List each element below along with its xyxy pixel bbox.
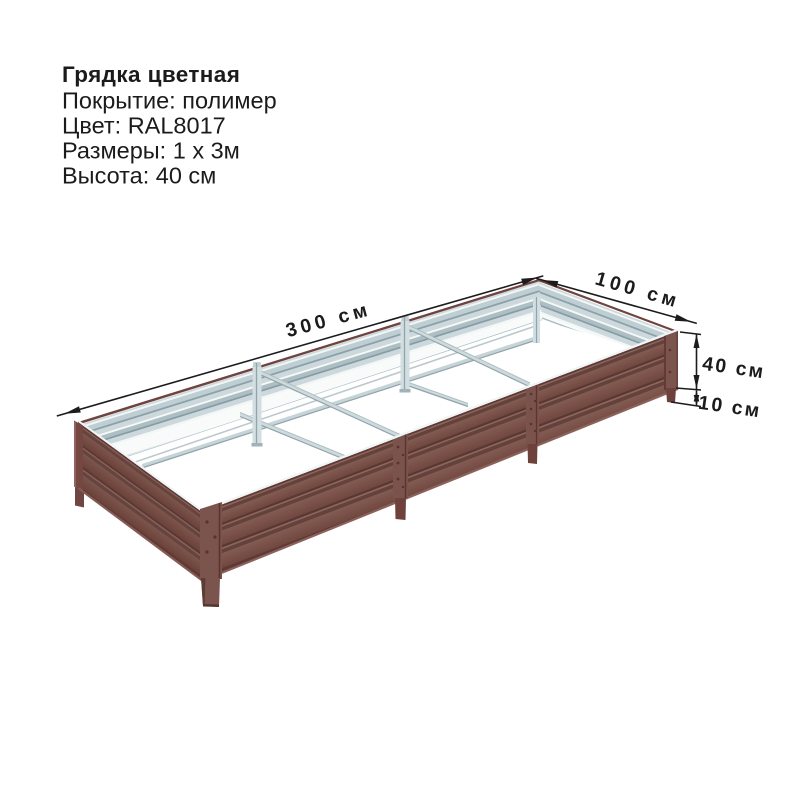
svg-text:Грядка цветная: Грядка цветная — [62, 62, 240, 87]
svg-text:10 см: 10 см — [697, 392, 763, 423]
svg-text:40 см: 40 см — [701, 353, 767, 384]
svg-text:Покрытие: полимер: Покрытие: полимер — [62, 88, 277, 114]
svg-text:Высота: 40 см: Высота: 40 см — [62, 163, 216, 189]
svg-text:Размеры: 1 х 3м: Размеры: 1 х 3м — [62, 138, 240, 164]
svg-text:Цвет: RAL8017: Цвет: RAL8017 — [62, 113, 226, 139]
